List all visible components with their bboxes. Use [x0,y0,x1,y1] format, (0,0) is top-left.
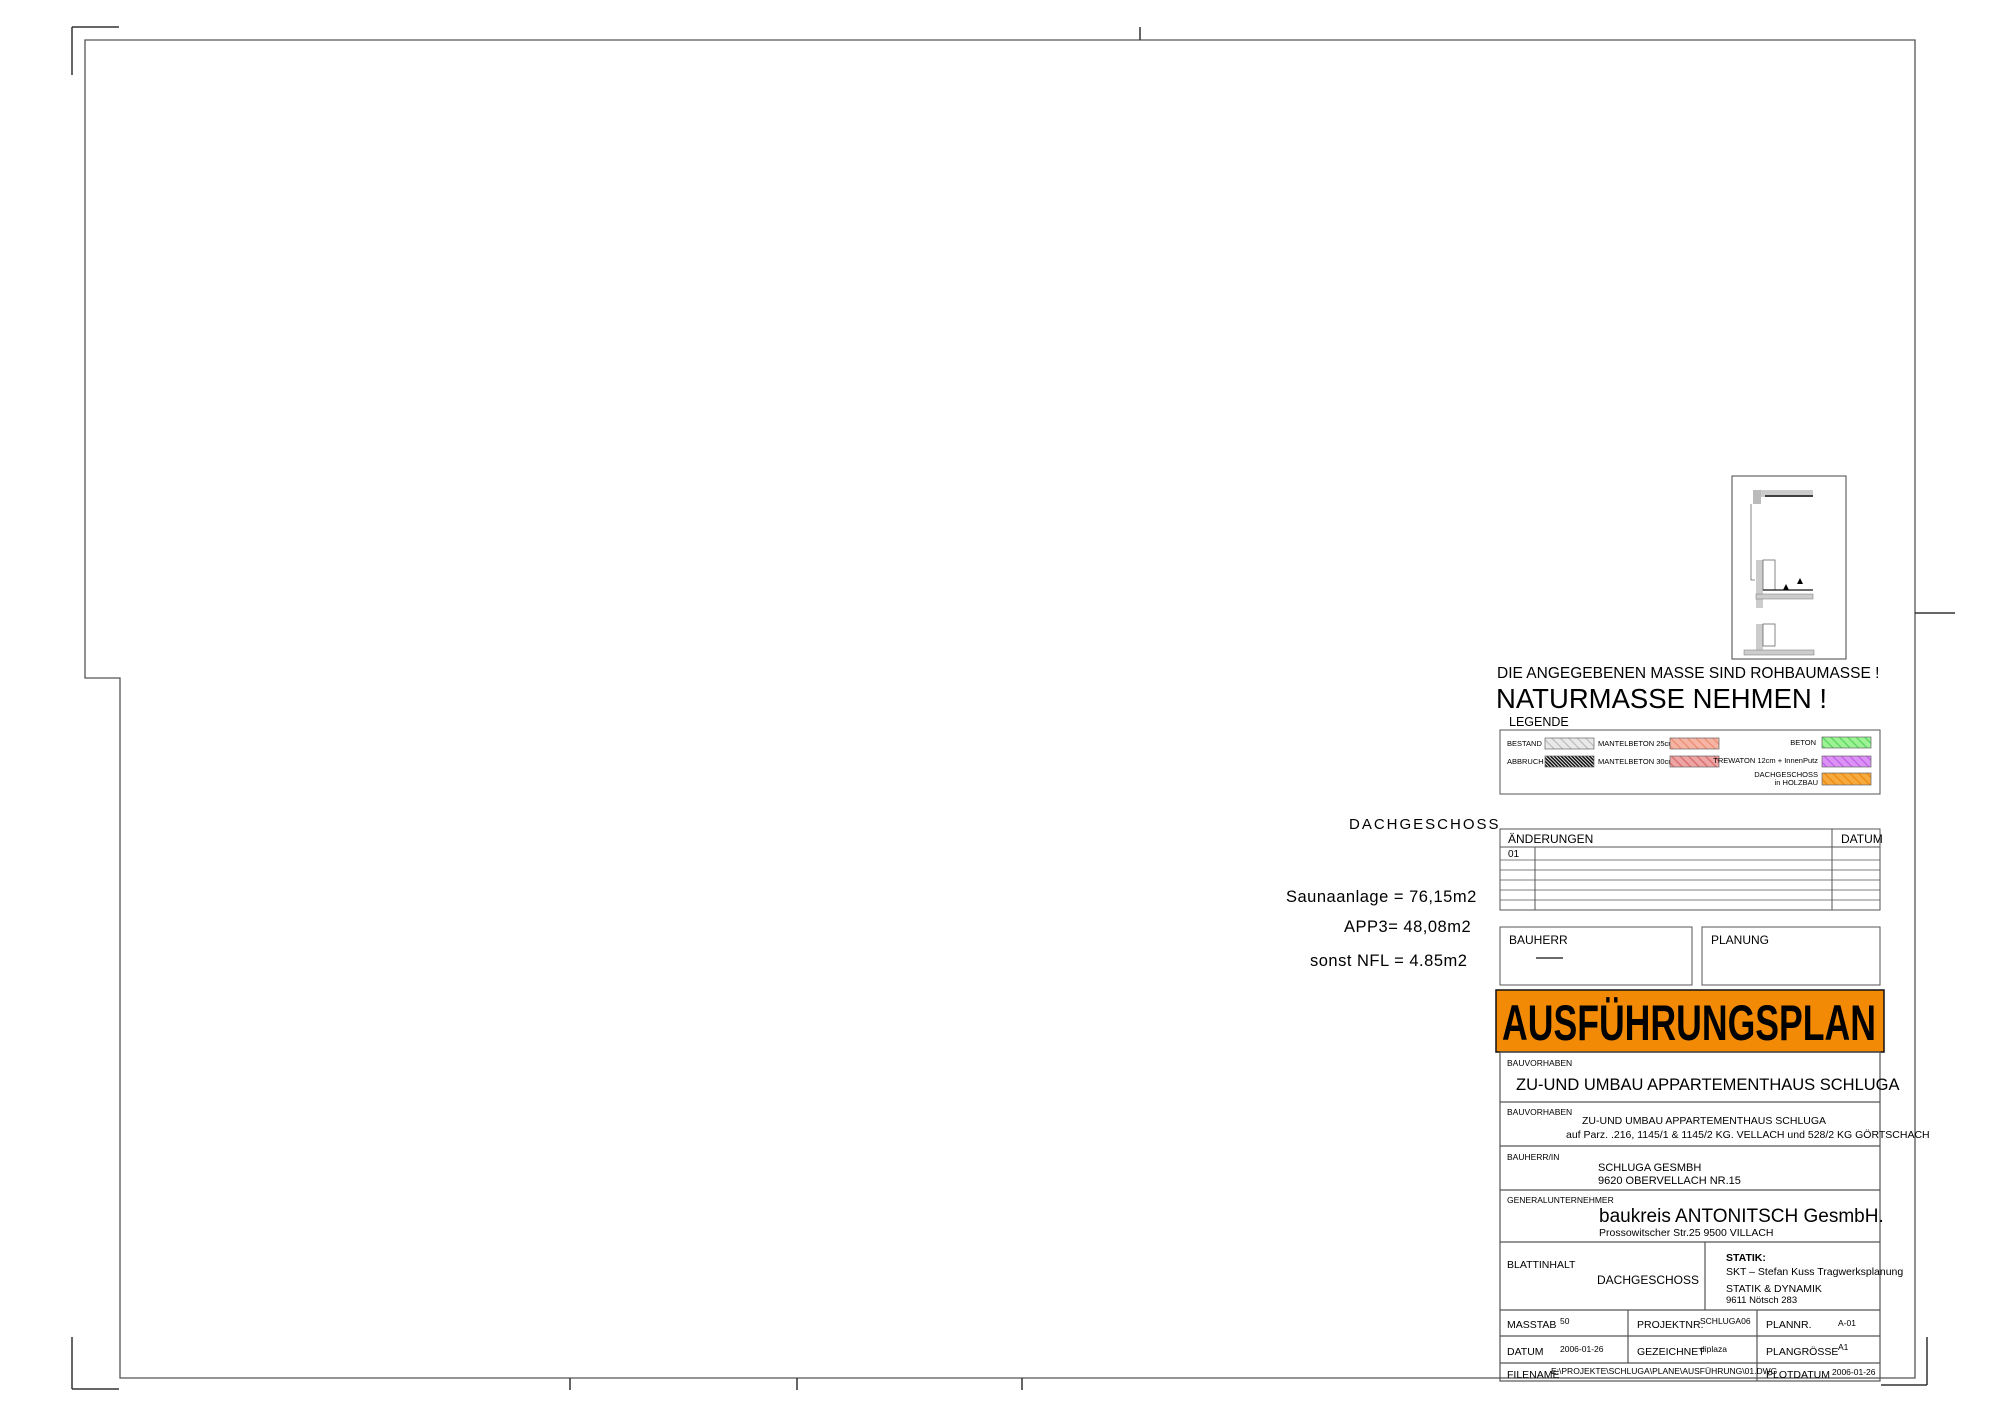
svg-text:BAUVORHABEN: BAUVORHABEN [1507,1107,1572,1117]
svg-text:BETON: BETON [1790,738,1816,747]
svg-text:sonst NFL = 4.85m2: sonst NFL = 4.85m2 [1310,952,1467,970]
svg-text:PROJEKTNR.: PROJEKTNR. [1637,1319,1704,1331]
svg-text:2006-01-26: 2006-01-26 [1560,1344,1604,1354]
svg-text:9611 Nötsch 283: 9611 Nötsch 283 [1726,1295,1797,1306]
svg-text:BAUHERR/IN: BAUHERR/IN [1507,1152,1559,1162]
svg-text:BAUVORHABEN: BAUVORHABEN [1507,1058,1572,1068]
svg-text:BAUHERR: BAUHERR [1509,933,1568,947]
svg-text:MASSTAB: MASSTAB [1507,1319,1556,1331]
svg-text:GEZEICHNET: GEZEICHNET [1637,1346,1705,1358]
svg-text:ABBRUCH: ABBRUCH [1507,757,1544,766]
svg-text:TREWATON 12cm + InnenPutz: TREWATON 12cm + InnenPutz [1713,756,1818,765]
svg-text:Saunaanlage = 76,15m2: Saunaanlage = 76,15m2 [1286,888,1477,906]
svg-text:in HOLZBAU: in HOLZBAU [1775,778,1818,787]
svg-text:PLANUNG: PLANUNG [1711,933,1769,947]
svg-text:PLANNR.: PLANNR. [1766,1319,1812,1331]
svg-text:9620 OBERVELLACH NR.15: 9620 OBERVELLACH NR.15 [1598,1175,1741,1187]
svg-text:ZU-UND UMBAU APPARTEMENTHAUS S: ZU-UND UMBAU APPARTEMENTHAUS SCHLUGA [1582,1115,1826,1127]
svg-text:SKT – Stefan Kuss Tragwerkspla: SKT – Stefan Kuss Tragwerksplanung [1726,1266,1903,1278]
svg-text:A1: A1 [1838,1342,1849,1352]
svg-text:NATURMASSE NEHMEN !: NATURMASSE NEHMEN ! [1496,683,1827,714]
svg-text:PLANGRÖSSE: PLANGRÖSSE [1766,1346,1838,1358]
svg-text:2006-01-26: 2006-01-26 [1832,1367,1876,1377]
svg-text:DATUM: DATUM [1841,832,1883,846]
svg-text:GENERALUNTERNEHMER: GENERALUNTERNEHMER [1507,1195,1614,1205]
svg-text:diplaza: diplaza [1700,1344,1727,1354]
svg-text:STATIK & DYNAMIK: STATIK & DYNAMIK [1726,1283,1822,1295]
svg-text:A-01: A-01 [1838,1318,1856,1328]
svg-text:50: 50 [1560,1316,1570,1326]
svg-text:AUSFÜHRUNGSPLAN: AUSFÜHRUNGSPLAN [1502,995,1876,1051]
svg-text:01: 01 [1508,849,1520,860]
svg-text:DACHGESCHOSS: DACHGESCHOSS [1349,816,1501,833]
svg-text:DIE ANGEGEBENEN MASSE SIND ROH: DIE ANGEGEBENEN MASSE SIND ROHBAUMASSE ! [1497,665,1879,682]
svg-text:SCHLUGA06: SCHLUGA06 [1700,1316,1751,1326]
svg-text:auf Parz. .216, 1145/1 & 1145/: auf Parz. .216, 1145/1 & 1145/2 KG. VELL… [1566,1129,1930,1141]
svg-text:ÄNDERUNGEN: ÄNDERUNGEN [1508,832,1593,846]
svg-text:APP3= 48,08m2: APP3= 48,08m2 [1344,918,1471,936]
svg-text:E:\PROJEKTE\SCHLUGA\PLANE\AUSF: E:\PROJEKTE\SCHLUGA\PLANE\AUSFÜHRUNG\01.… [1551,1366,1777,1376]
svg-text:BLATTINHALT: BLATTINHALT [1507,1259,1576,1271]
svg-text:ZU-UND UMBAU APPARTEMENTHAUS S: ZU-UND UMBAU APPARTEMENTHAUS SCHLUGA [1516,1076,1900,1094]
svg-text:PLOTDATUM: PLOTDATUM [1766,1369,1830,1381]
svg-text:MANTELBETON 25cm: MANTELBETON 25cm [1598,739,1675,748]
svg-text:STATIK:: STATIK: [1726,1252,1766,1264]
svg-text:baukreis ANTONITSCH GesmbH.: baukreis ANTONITSCH GesmbH. [1599,1206,1884,1227]
svg-text:DACHGESCHOSS: DACHGESCHOSS [1597,1273,1699,1287]
svg-text:BESTAND: BESTAND [1507,739,1542,748]
svg-text:SCHLUGA GESMBH: SCHLUGA GESMBH [1598,1162,1701,1174]
svg-text:DATUM: DATUM [1507,1346,1544,1358]
svg-text:MANTELBETON 30cm: MANTELBETON 30cm [1598,757,1675,766]
svg-text:LEGENDE: LEGENDE [1509,715,1569,729]
svg-text:Prossowitscher Str.25 9500 VI: Prossowitscher Str.25 9500 VILLACH [1599,1227,1774,1239]
